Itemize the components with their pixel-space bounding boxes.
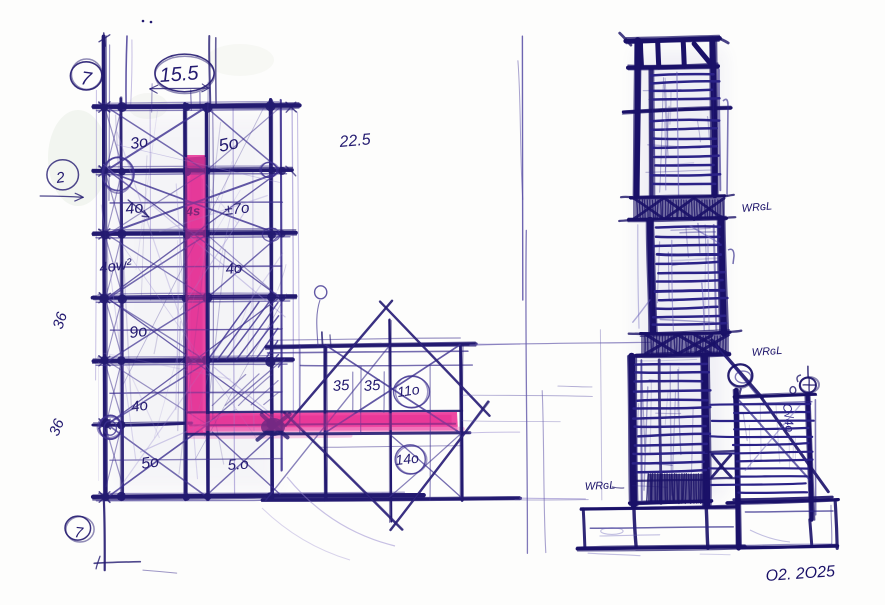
svg-text:5o: 5o [217,132,241,156]
svg-text:35: 35 [363,377,381,395]
svg-text:4o: 4o [130,397,149,416]
svg-text:5.o: 5.o [227,456,249,474]
svg-text:15.5: 15.5 [159,62,200,87]
svg-text:4o: 4o [125,199,145,218]
svg-text:22.5: 22.5 [338,131,372,151]
svg-text:5o: 5o [140,453,160,473]
svg-text:3o: 3o [129,134,149,153]
svg-text:WRɢL: WRɢL [585,479,616,493]
svg-text:9o: 9o [128,323,148,342]
svg-text:WRɢL: WRɢL [751,345,782,359]
svg-text:11o: 11o [396,381,421,400]
svg-text:4o: 4o [225,260,243,278]
svg-text:±7o: ±7o [224,199,251,219]
svg-text:14o: 14o [395,450,420,468]
svg-text:35: 35 [332,377,350,395]
